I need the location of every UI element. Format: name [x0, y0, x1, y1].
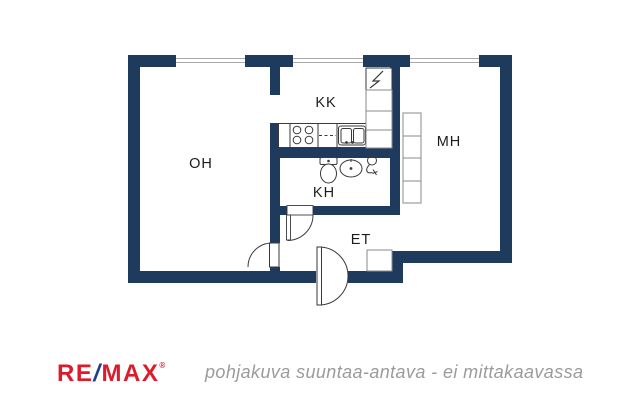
- floor-plan-graphic: [0, 0, 640, 404]
- room-label-kitchenette: KK: [315, 95, 336, 111]
- wall-bath-bottom-left: [270, 206, 287, 215]
- shower-icon: [367, 156, 378, 175]
- entrance-door: [316, 247, 348, 305]
- wall-right: [500, 55, 512, 263]
- wall-bottom-left: [128, 271, 403, 283]
- bathroom-fixtures: [320, 156, 378, 183]
- hall-closet: [367, 250, 392, 271]
- wall-below-living-door: [270, 267, 280, 273]
- remax-logo-slash: /: [93, 360, 101, 387]
- remax-logo-re: RE: [57, 360, 93, 387]
- disclaimer-caption: pohjakuva suuntaa-antava - ei mittakaava…: [205, 362, 583, 383]
- living-room-door: [248, 243, 279, 267]
- room-label-bathroom: KH: [313, 185, 335, 201]
- remax-logo: RE/MAX®: [57, 360, 167, 388]
- kitchen-counter: [279, 124, 368, 148]
- toilet-icon: [320, 158, 337, 184]
- room-label-hallway: ET: [351, 232, 372, 248]
- wall-left: [128, 55, 140, 283]
- room-label-living: OH: [189, 156, 213, 172]
- bedroom-closets: [403, 113, 421, 203]
- window: [176, 55, 245, 67]
- wall-bath-bottom-right: [313, 206, 400, 215]
- washbasin-icon: [340, 159, 362, 177]
- registered-trademark-icon: ®: [159, 361, 166, 370]
- floor-plan: OH KK MH KH ET RE/MAX® pohjakuva suuntaa…: [0, 0, 640, 404]
- wall-kitchen-bath: [270, 148, 400, 158]
- wall-step: [392, 251, 403, 283]
- kitchen-cabinets: [366, 68, 392, 148]
- window: [293, 55, 363, 67]
- wall-bedroom-bottom: [392, 251, 512, 263]
- window: [410, 55, 479, 67]
- doors: [248, 206, 348, 306]
- remax-logo-max: MAX: [102, 360, 160, 387]
- bathroom-door: [287, 206, 314, 241]
- room-label-bedroom: MH: [437, 134, 462, 150]
- wall-stub-living-kitchen: [270, 67, 280, 95]
- windows: [176, 55, 479, 67]
